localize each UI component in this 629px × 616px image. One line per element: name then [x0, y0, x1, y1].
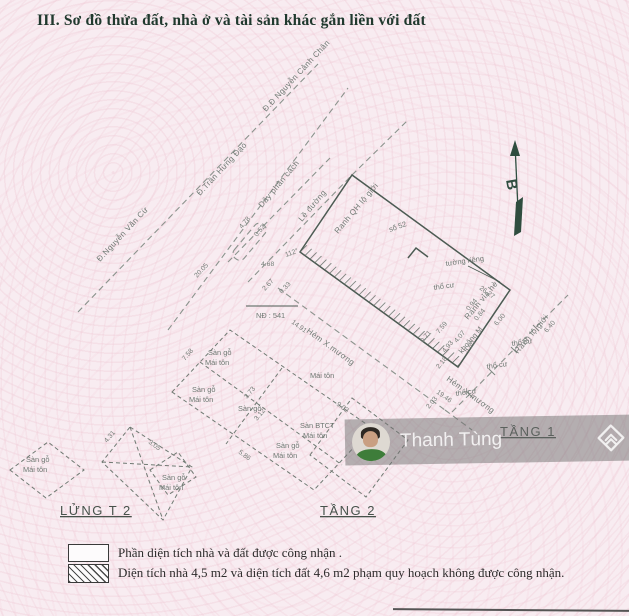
building-label: Mái tôn: [310, 371, 334, 380]
dimension-label: 0.33: [278, 281, 292, 296]
building-label: Mái tôn: [159, 483, 183, 492]
building-label: Mái tôn: [303, 431, 327, 440]
avatar-face: [363, 431, 378, 447]
dimension-label: 2.67: [261, 278, 275, 293]
dimension-label: 19.46: [435, 389, 453, 405]
building-label: Sàn BTCT: [300, 421, 335, 430]
road-label: Hẻm X.mương: [305, 326, 357, 367]
road-label: Đ.Trần Hưng Đạo: [195, 140, 249, 197]
building-label: Sàn gỗ: [276, 441, 299, 450]
dimension-label: 3.05: [147, 439, 162, 453]
building-label: Mái tôn: [23, 465, 47, 474]
floor-label: TẦNG 2: [320, 503, 376, 518]
building-label: Sàn gỗ: [238, 404, 261, 413]
dimension-label: 4.78: [238, 215, 252, 230]
watermark-username: Thanh Tùng: [400, 429, 502, 453]
building-label: Sàn gỗ: [192, 385, 215, 394]
dimension-label: 4.31: [103, 429, 117, 444]
dimension-label: 5.86: [237, 449, 252, 463]
annotation-label: tường riêng: [445, 254, 484, 268]
building-label: Mái tôn: [205, 358, 229, 367]
dimension-label: 6.00: [493, 312, 507, 327]
violation-hatched-strip: [300, 244, 463, 367]
dimension-label: 4.68: [261, 261, 274, 268]
annotation-label: NĐ : 541: [256, 311, 285, 320]
road-label: Dây phân cách: [257, 159, 302, 210]
road-label: Đ.Đ Nguyễn Cảnh Chân: [261, 38, 332, 113]
annotation-label: thổ cư: [433, 280, 455, 292]
watermark-band: Thanh Tùng: [345, 414, 629, 465]
annotation-label: thổ cư: [511, 336, 533, 348]
floor-label: LỬNG T 2: [60, 503, 132, 518]
dimension-label: 7.59: [435, 320, 449, 335]
road-label: Ranh QH lộ giới: [333, 181, 381, 235]
watermark-avatar: [352, 423, 391, 462]
site-plan-drawing: Đ.Nguyễn Văn CừĐ.Trần Hưng ĐạoĐ.Đ Nguyễn…: [0, 0, 629, 616]
avatar-shirt: [356, 449, 386, 462]
annotation-label: thổ cư: [486, 359, 508, 371]
diamond-chevron-logo-icon: [596, 423, 627, 454]
building-label: Sàn gỗ: [26, 455, 49, 464]
building-label: Sàn gỗ: [162, 473, 185, 482]
dimension-label: 14.91: [290, 319, 308, 335]
north-label: B: [502, 178, 521, 192]
building-label: Sàn gỗ: [208, 348, 231, 357]
dimension-label: 112°: [284, 247, 300, 259]
dimension-label: 20.05: [193, 262, 210, 279]
dimension-label: 3.73: [243, 385, 257, 400]
road-label: Đ.Nguyễn Văn Cừ: [95, 205, 150, 264]
scanned-land-certificate-page: III. Sơ đồ thửa đất, nhà ở và tài sản kh…: [0, 0, 629, 616]
building-label: Mái tôn: [189, 395, 213, 404]
road-label: Ranh lộ giới: [513, 313, 551, 355]
building-label: Mái tôn: [273, 451, 297, 460]
dimension-label: 9.02: [335, 401, 350, 415]
dimension-label: 7.58: [181, 347, 195, 362]
annotation-label: số 52: [388, 219, 408, 234]
